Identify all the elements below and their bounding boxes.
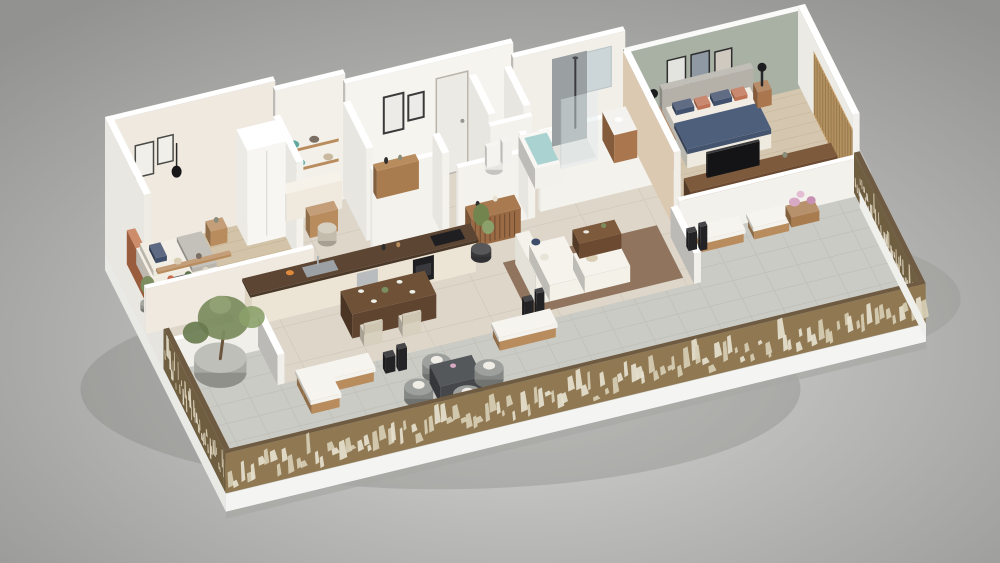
- kitchen-plant-pot: [471, 243, 491, 263]
- terrace-lantern-a: [383, 350, 396, 374]
- utility-basket: [323, 153, 333, 160]
- hydrangea-pink-1: [789, 197, 800, 206]
- sideboard-decor-light: [493, 196, 498, 202]
- console-decor-dark: [384, 157, 388, 164]
- pendant-lamp-black: [172, 166, 182, 178]
- sofa-cushion-white: [540, 254, 549, 261]
- outdoor-cushion-east: [483, 362, 495, 370]
- kitchen-jar-dark: [382, 244, 386, 250]
- floorplan-stage: [0, 0, 1000, 563]
- bedroom1-art-frame-2: [158, 135, 173, 165]
- outdoor-table-flowers: [450, 363, 456, 367]
- dining-centerpiece-plant: [381, 287, 388, 293]
- dinner-plate-3: [371, 299, 377, 303]
- apartment-3d-render: [0, 0, 1000, 563]
- hall-art-frame-1: [384, 93, 404, 134]
- terrace-lantern-right-1: [686, 226, 697, 251]
- console-decor-vase: [398, 155, 402, 161]
- master-lamp-right-shade: [758, 63, 767, 72]
- hydrangea-pink-3: [797, 191, 805, 198]
- wc-basin: [500, 136, 511, 165]
- utility-basket-gray: [309, 136, 319, 143]
- olive-foliage-left: [183, 322, 209, 344]
- wall-hall-return: [433, 133, 450, 236]
- olive-foliage-right: [239, 306, 265, 328]
- hydrangea-pink-2: [807, 196, 816, 204]
- fruit-bowl-oranges: [286, 270, 294, 275]
- shower-head: [572, 56, 578, 59]
- shelf-books-beige: [174, 258, 182, 265]
- kitchen-plant-mid: [482, 220, 494, 234]
- shower-glass: [561, 91, 598, 169]
- wardrobe: [236, 120, 285, 246]
- terrace-lantern-right-2: [698, 221, 707, 251]
- dinner-plate-4: [409, 290, 415, 294]
- vanity-sink: [615, 117, 623, 122]
- kitchen-jar-wood: [396, 242, 400, 247]
- coffee-table-plant: [601, 223, 606, 228]
- outdoor-cushion-west: [413, 381, 425, 389]
- nightstand-vase: [214, 217, 219, 223]
- shelf-books-brown: [196, 253, 202, 259]
- entry-door-handle: [460, 119, 464, 123]
- dinner-plate-1: [358, 289, 364, 293]
- olive-foliage-top: [209, 296, 231, 314]
- terrace-lantern-b: [396, 343, 407, 372]
- wc-cistern: [485, 141, 500, 168]
- media-decor-vase: [782, 152, 787, 158]
- dinner-plate-2: [397, 280, 403, 284]
- sofa-cushion-navy: [531, 238, 540, 245]
- utility-chair: [318, 222, 337, 246]
- coffee-table-books: [583, 230, 589, 233]
- hall-art-frame-2: [408, 92, 423, 121]
